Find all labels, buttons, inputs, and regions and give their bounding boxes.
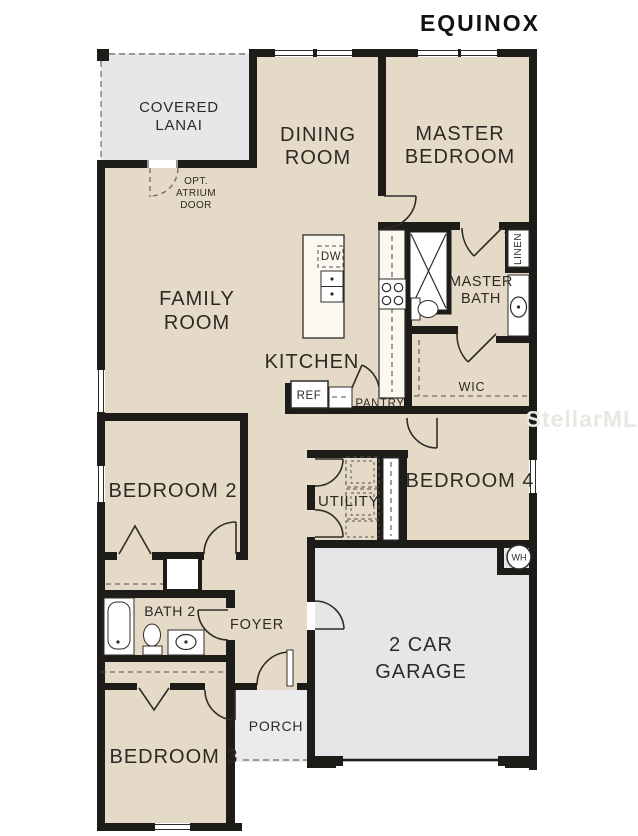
room-fills [101, 53, 533, 827]
wall-bedroom4-left [399, 452, 407, 544]
wall-bath2-bottom [97, 655, 233, 662]
room-label-garage-2: GARAGE [375, 661, 467, 683]
wall-masterbath-wic-right [496, 336, 537, 343]
room-label-foyer: FOYER [230, 617, 284, 633]
hall-linen-cabinet [165, 557, 200, 591]
wall-garage-left-b [307, 630, 315, 762]
wall-bedroom2-bottom-c [236, 552, 248, 560]
wall-lanai-right [249, 49, 257, 168]
pantry-counter [329, 387, 352, 408]
wall-lanai-corner-post [97, 49, 109, 61]
room-label-master-bath: MASTER [449, 274, 513, 290]
room-label-family: FAMILY [159, 288, 235, 310]
wall-dining-master [378, 49, 386, 196]
room-label-covered-lanai: COVERED [139, 99, 219, 116]
room-label-bath2: BATH 2 [144, 603, 196, 619]
label-ref: REF [297, 390, 322, 402]
wall-utility-left-b [307, 485, 315, 510]
wall-utility-top [307, 450, 408, 458]
annotation-atrium-1: OPT. [184, 176, 208, 187]
wall-bedroom3-top-a [97, 683, 137, 690]
floorplan-page: EQUINOX COVERED LANAI DINING ROOM MASTER… [0, 0, 638, 836]
wall-garage-left-a [307, 548, 315, 602]
atrium-door-opening [147, 160, 178, 168]
annotation-atrium-2: ATRIUM [176, 188, 216, 199]
label-pantry: PANTRY [355, 398, 404, 410]
wall-bedroom2-bottom-a [97, 552, 117, 560]
room-label-family-2: ROOM [164, 312, 230, 334]
range-stove [379, 279, 406, 309]
room-label-dining: DINING [280, 124, 356, 146]
wall-masterbath-wic-left [404, 326, 458, 334]
room-label-master-bedroom: MASTER [415, 123, 504, 145]
window [155, 823, 190, 831]
wall-porch-top-a [235, 683, 257, 690]
annotation-atrium-3: DOOR [180, 200, 212, 211]
wall-porch-top-b [297, 683, 311, 690]
bath2-toilet [143, 624, 162, 655]
kitchen-sink [321, 271, 343, 302]
wall-bedroom2-top [97, 413, 247, 421]
window [317, 49, 352, 57]
kitchen-counter [379, 230, 406, 398]
floorplan-drawing: EQUINOX COVERED LANAI DINING ROOM MASTER… [0, 0, 638, 836]
room-label-kitchen: KITCHEN [265, 351, 360, 373]
window [275, 49, 313, 57]
window [461, 49, 497, 57]
window [418, 49, 458, 57]
bath2-vanity [168, 630, 204, 655]
hall-closet [383, 458, 399, 540]
wall-bedroom2-right [240, 413, 248, 560]
room-label-covered-lanai-2: LANAI [155, 117, 202, 134]
room-label-utility: UTILITY [318, 493, 379, 510]
wall-linen-bottom [505, 267, 537, 273]
room-label-dining-2: ROOM [285, 147, 351, 169]
bathtub [104, 598, 134, 655]
room-label-bedroom4: BEDROOM 4 [405, 470, 534, 492]
room-label-master-bedroom-2: BEDROOM [405, 146, 515, 168]
wall-lanai-bottom-left [97, 160, 147, 168]
wall-garage-bottom-left [307, 756, 336, 768]
window [97, 370, 105, 412]
wall-lanai-bottom-right [178, 160, 257, 168]
room-label-bedroom2: BEDROOM 2 [108, 480, 237, 502]
wall-bedroom3-top-b [170, 683, 205, 690]
label-wh: WH [512, 553, 527, 563]
wall-masterbed-bottom-right [499, 222, 537, 230]
window [97, 466, 105, 502]
room-label-porch: PORCH [249, 718, 304, 734]
wall-bath2-right-b [226, 640, 235, 830]
wall-garage-bottom-right [505, 756, 537, 768]
room-label-bedroom3: BEDROOM 3 [109, 746, 238, 768]
wall-bath2-right-a [226, 590, 235, 608]
room-label-garage: 2 CAR [389, 634, 453, 656]
room-label-wic: WIC [459, 380, 486, 394]
label-linen: LINEN [513, 233, 524, 265]
room-label-master-bath-2: BATH [461, 291, 501, 307]
plan-title: EQUINOX [420, 10, 540, 36]
wall-utility-left-a [307, 450, 315, 458]
wall-garage-top [307, 540, 537, 548]
label-dw: DW [321, 251, 341, 263]
watermark: StellarMLS [526, 406, 638, 432]
